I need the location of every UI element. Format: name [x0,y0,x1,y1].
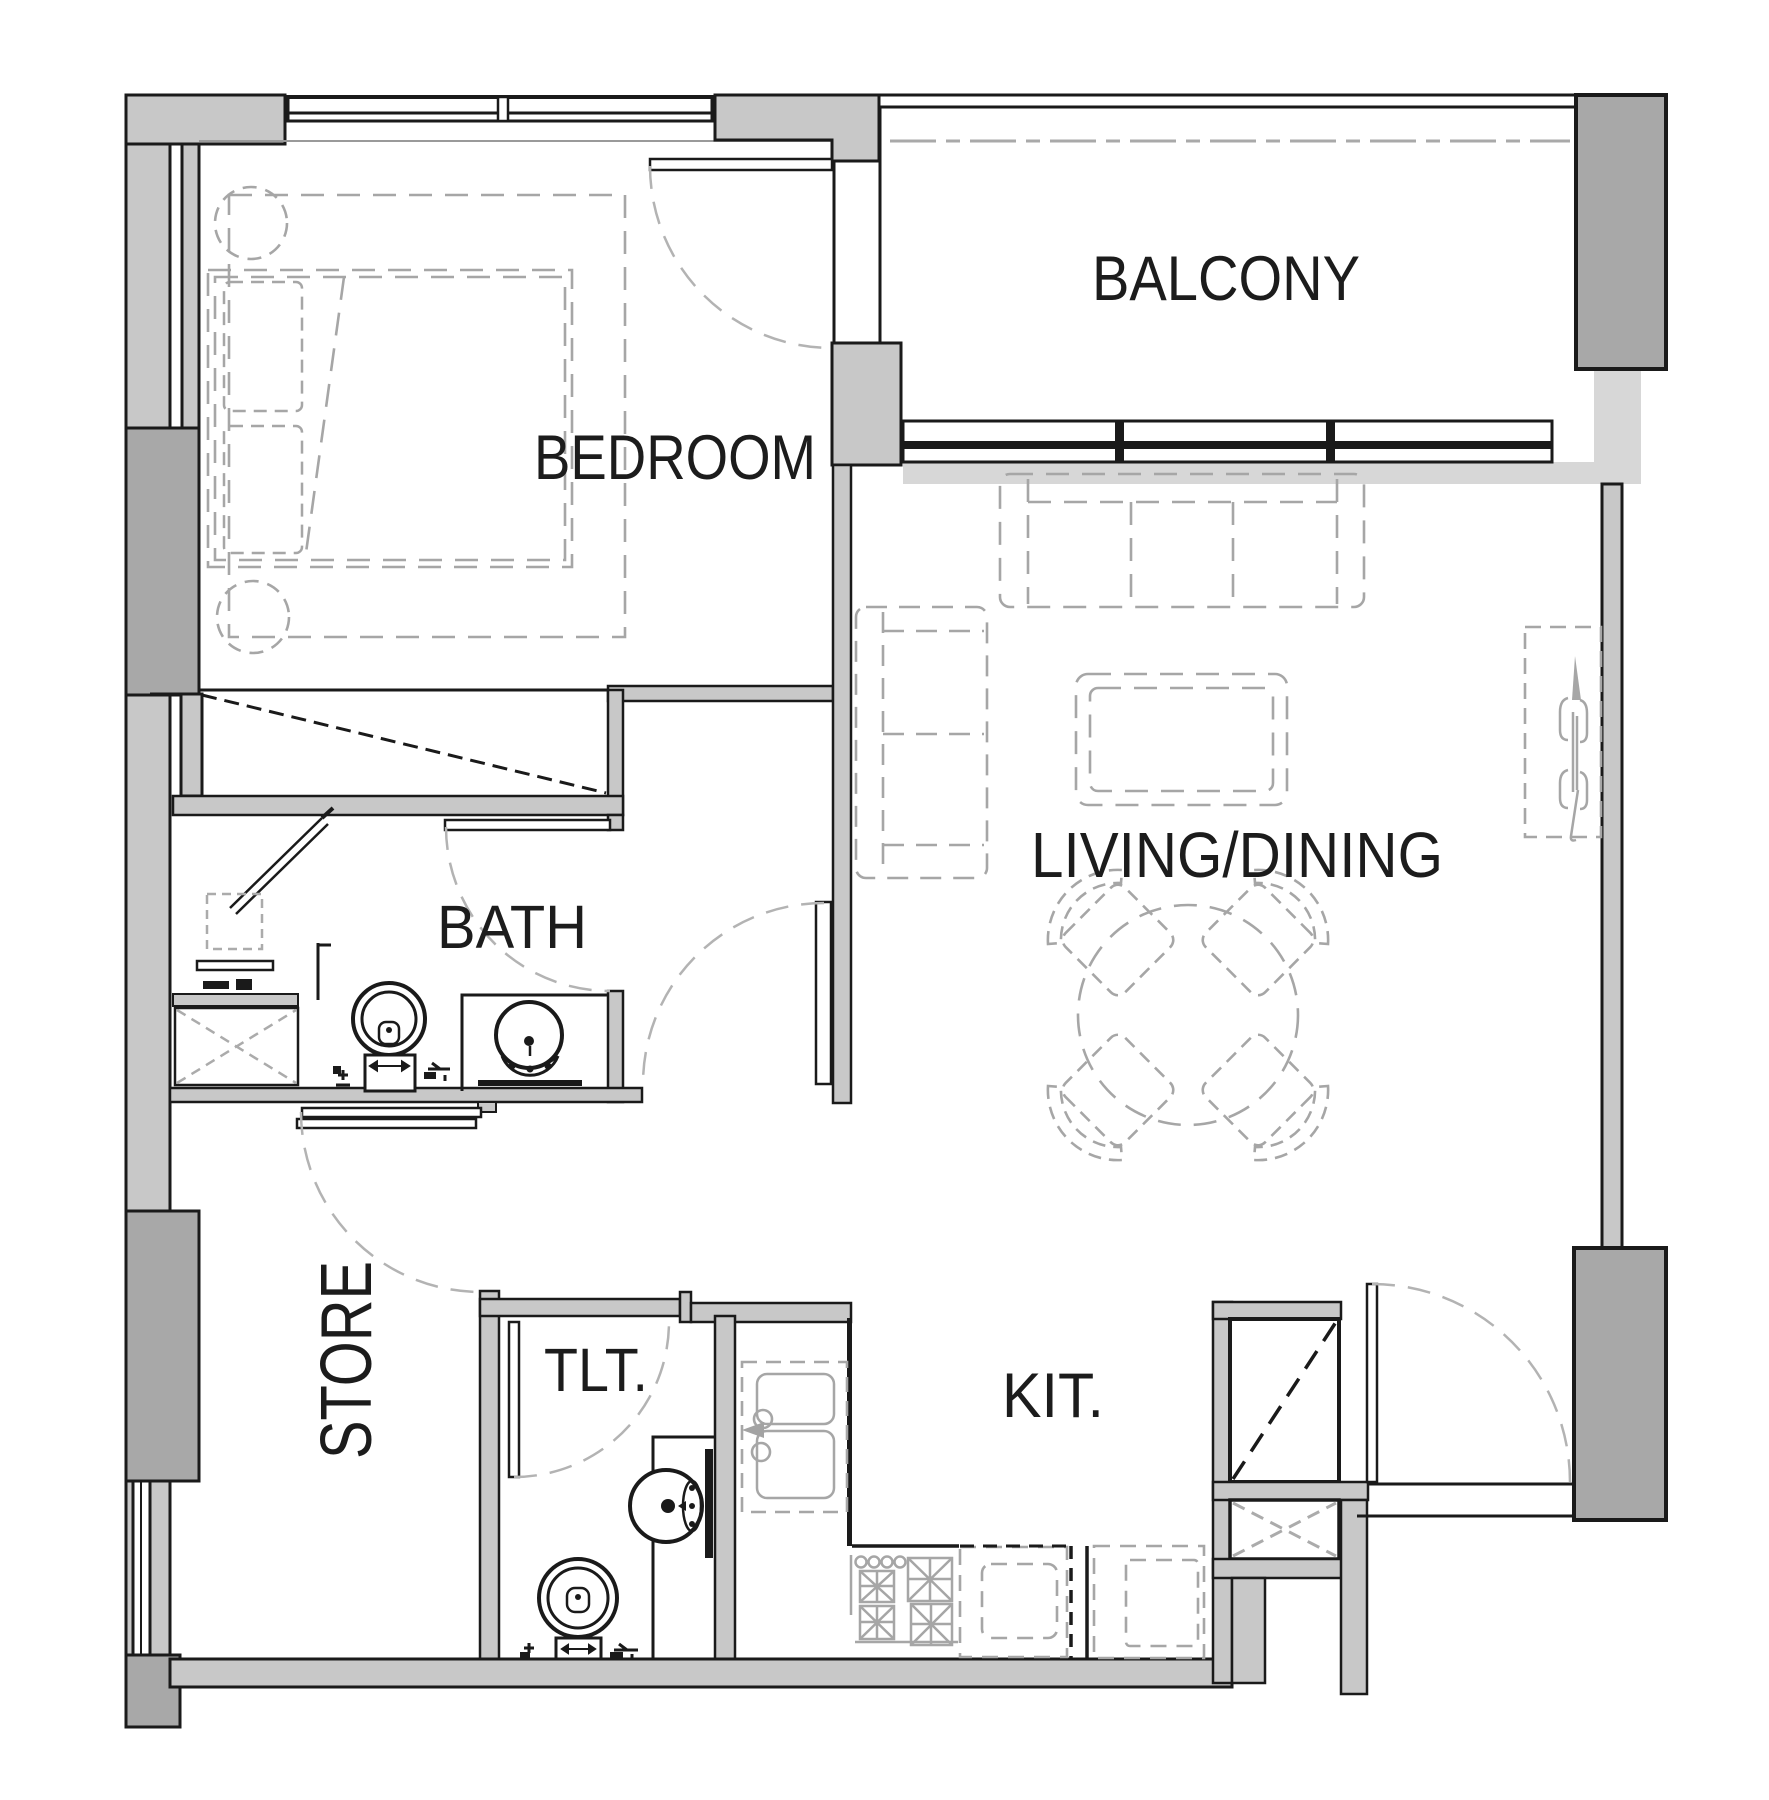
svg-text:KIT.: KIT. [1002,1361,1104,1431]
svg-text:STORE: STORE [307,1261,387,1459]
svg-text:BATH: BATH [437,893,587,961]
svg-text:BALCONY: BALCONY [1092,244,1360,314]
svg-text:BEDROOM: BEDROOM [534,423,816,493]
svg-text:TLT.: TLT. [544,1336,648,1404]
svg-text:LIVING/DINING: LIVING/DINING [1031,819,1443,891]
